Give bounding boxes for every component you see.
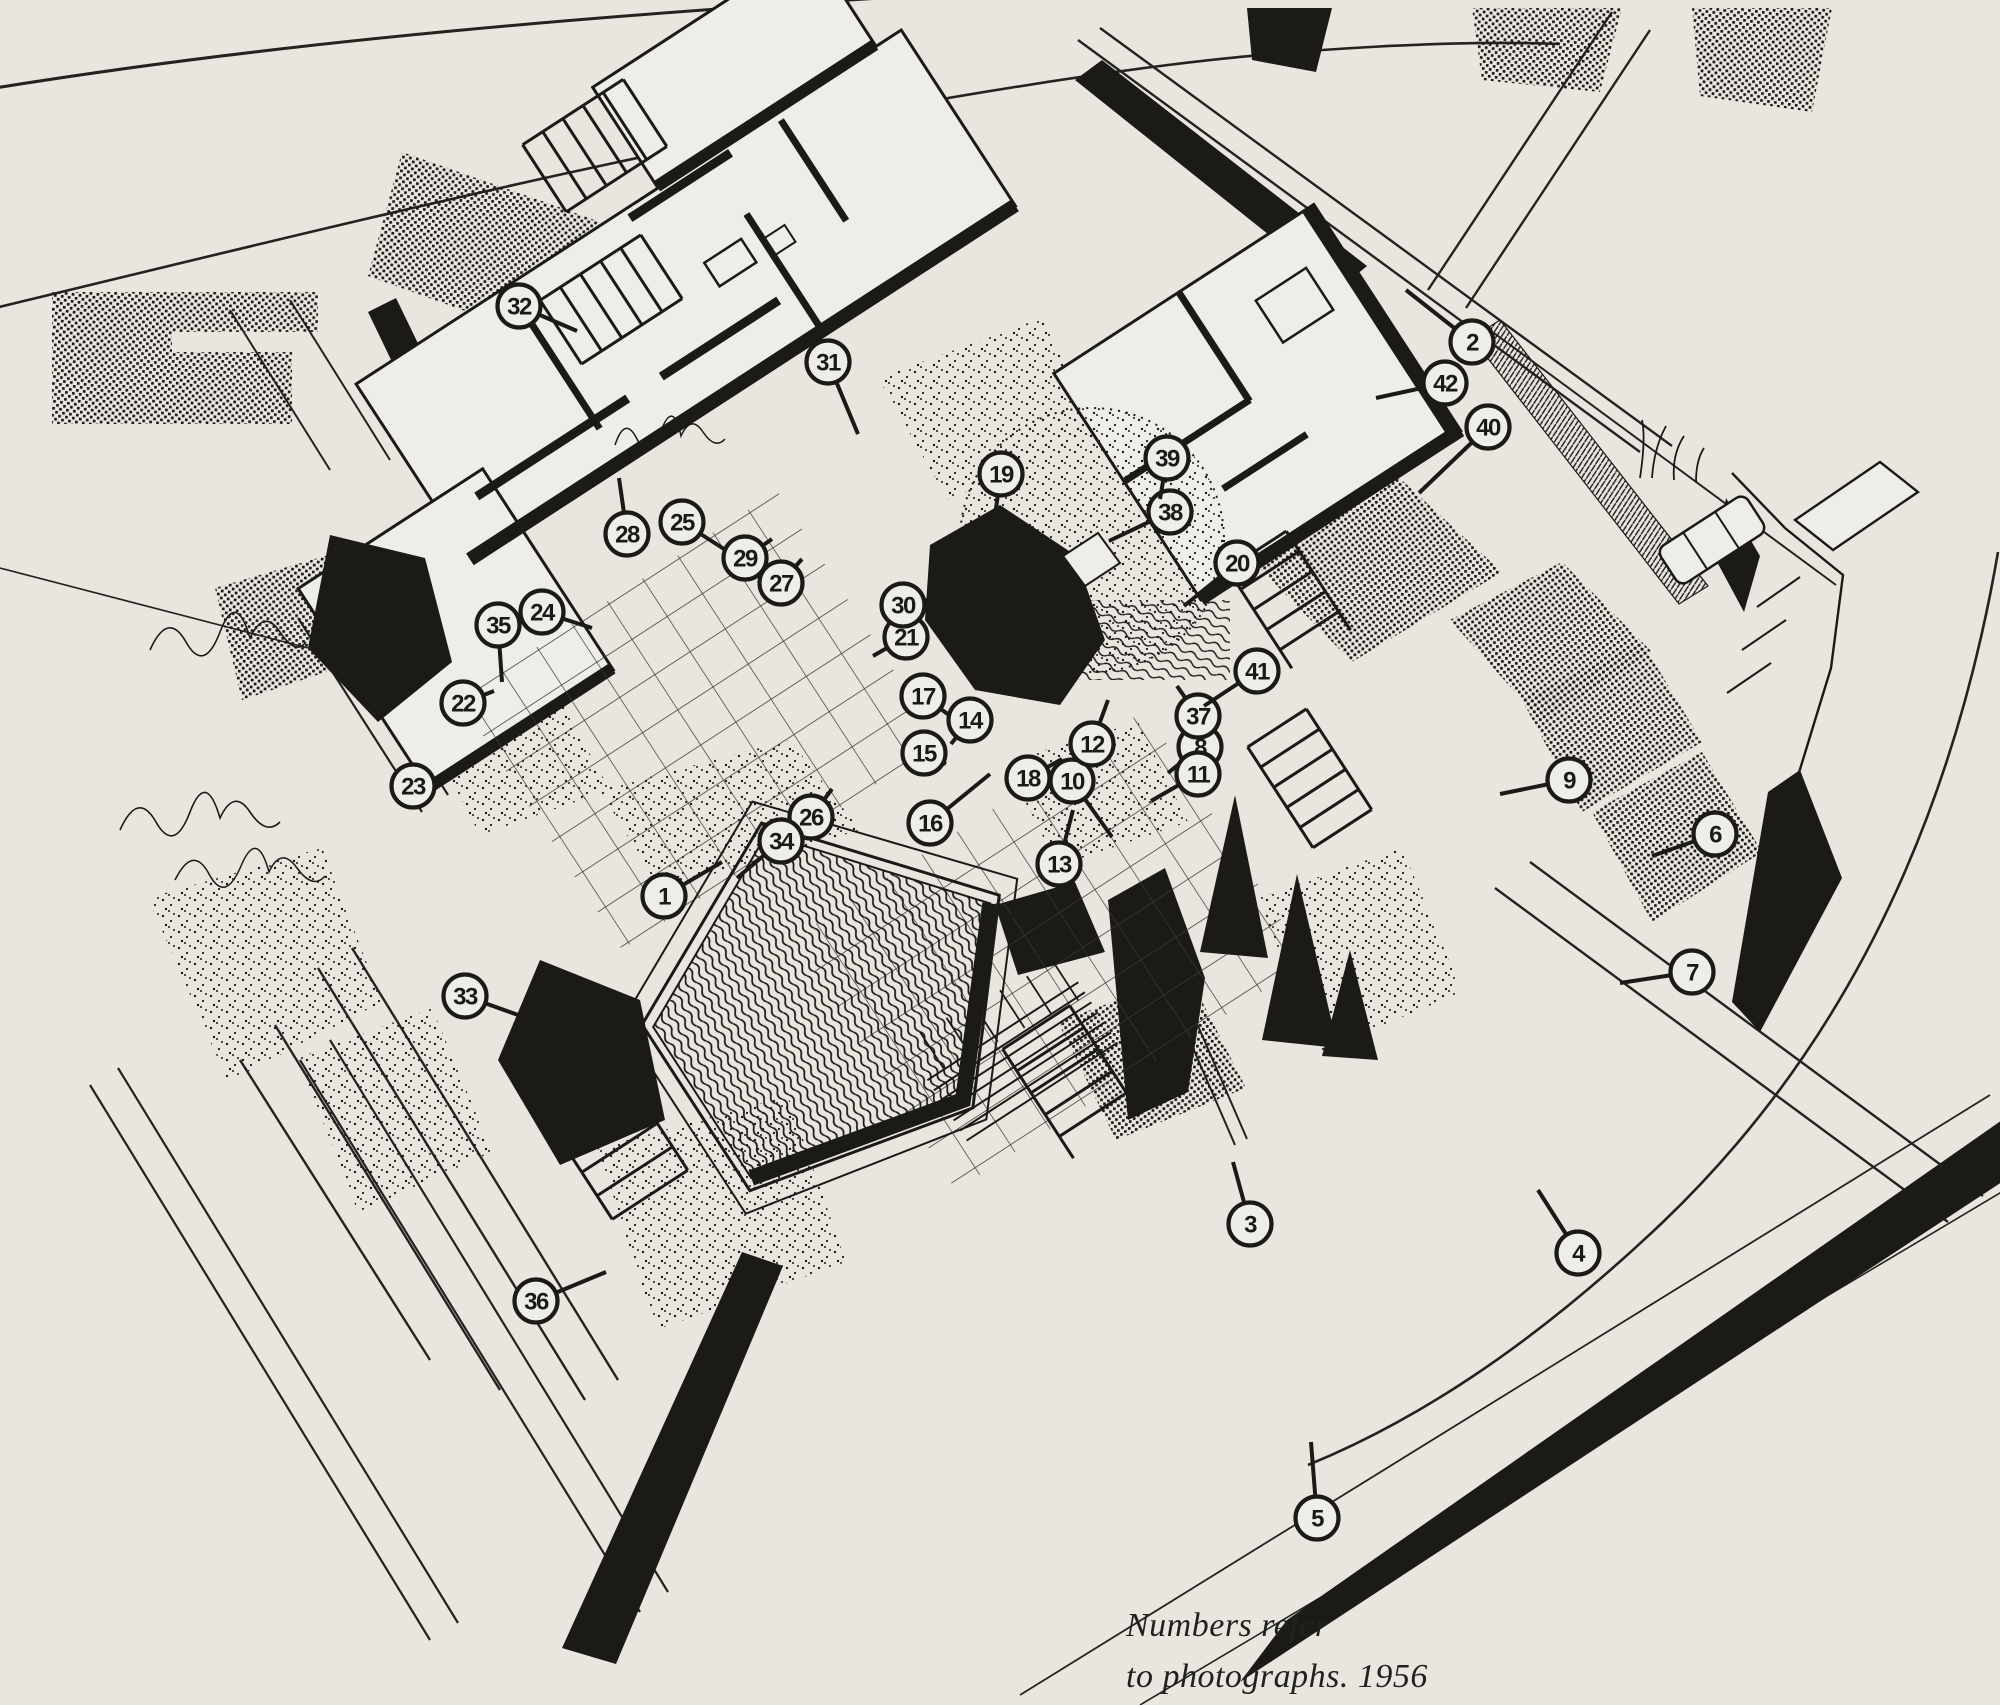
photo-marker-number: 25 bbox=[670, 510, 695, 537]
caption-line-2: to photographs. 1956 bbox=[1126, 1651, 1646, 1702]
photo-marker-number: 2 bbox=[1466, 330, 1479, 357]
photo-marker-number: 27 bbox=[769, 571, 794, 598]
photo-marker-number: 35 bbox=[486, 613, 511, 640]
photo-marker-number: 5 bbox=[1311, 1506, 1324, 1533]
photo-marker-number: 26 bbox=[799, 805, 824, 832]
photo-marker-number: 41 bbox=[1245, 659, 1270, 686]
photo-marker-number: 31 bbox=[816, 350, 841, 377]
caption: Numbers refer to photographs. 1956 bbox=[1126, 1600, 1646, 1702]
photo-marker-number: 6 bbox=[1709, 822, 1722, 849]
photo-marker-number: 11 bbox=[1187, 762, 1211, 789]
caption-line-1: Numbers refer bbox=[1126, 1600, 1646, 1651]
photo-marker-number: 10 bbox=[1060, 769, 1085, 796]
photo-marker-number: 18 bbox=[1016, 766, 1041, 793]
photo-marker-number: 36 bbox=[524, 1289, 549, 1316]
photo-marker-number: 38 bbox=[1158, 500, 1183, 527]
drawing-page: 1234567891011121314151617181920212223242… bbox=[0, 0, 2000, 1705]
photo-marker-number: 7 bbox=[1686, 960, 1699, 987]
photo-marker-number: 30 bbox=[891, 593, 916, 620]
photo-marker-number: 34 bbox=[769, 829, 795, 856]
photo-marker-number: 20 bbox=[1225, 551, 1250, 578]
axonometric-drawing: 1234567891011121314151617181920212223242… bbox=[0, 0, 2000, 1705]
photo-marker-number: 29 bbox=[733, 546, 758, 573]
photo-marker-number: 33 bbox=[453, 984, 478, 1011]
photo-marker-number: 15 bbox=[912, 741, 937, 768]
photo-marker-number: 40 bbox=[1476, 415, 1501, 442]
photo-marker-number: 17 bbox=[911, 684, 936, 711]
photo-marker-number: 19 bbox=[989, 462, 1014, 489]
photo-marker-number: 21 bbox=[894, 625, 919, 652]
photo-marker-number: 12 bbox=[1080, 732, 1105, 759]
photo-marker-number: 32 bbox=[507, 294, 532, 321]
photo-marker-number: 24 bbox=[530, 600, 556, 627]
photo-marker-number: 39 bbox=[1155, 446, 1180, 473]
photo-marker-number: 22 bbox=[451, 691, 476, 718]
photo-marker-number: 16 bbox=[918, 811, 943, 838]
photo-marker-number: 42 bbox=[1433, 371, 1458, 398]
photo-marker-number: 23 bbox=[401, 774, 426, 801]
photo-marker-number: 14 bbox=[958, 708, 984, 735]
photo-marker-number: 1 bbox=[658, 884, 671, 911]
photo-marker-number: 28 bbox=[615, 522, 640, 549]
photo-marker-number: 37 bbox=[1186, 704, 1211, 731]
photo-marker-number: 13 bbox=[1047, 852, 1072, 879]
photo-marker-number: 3 bbox=[1244, 1212, 1257, 1239]
photo-marker-number: 9 bbox=[1563, 768, 1576, 795]
